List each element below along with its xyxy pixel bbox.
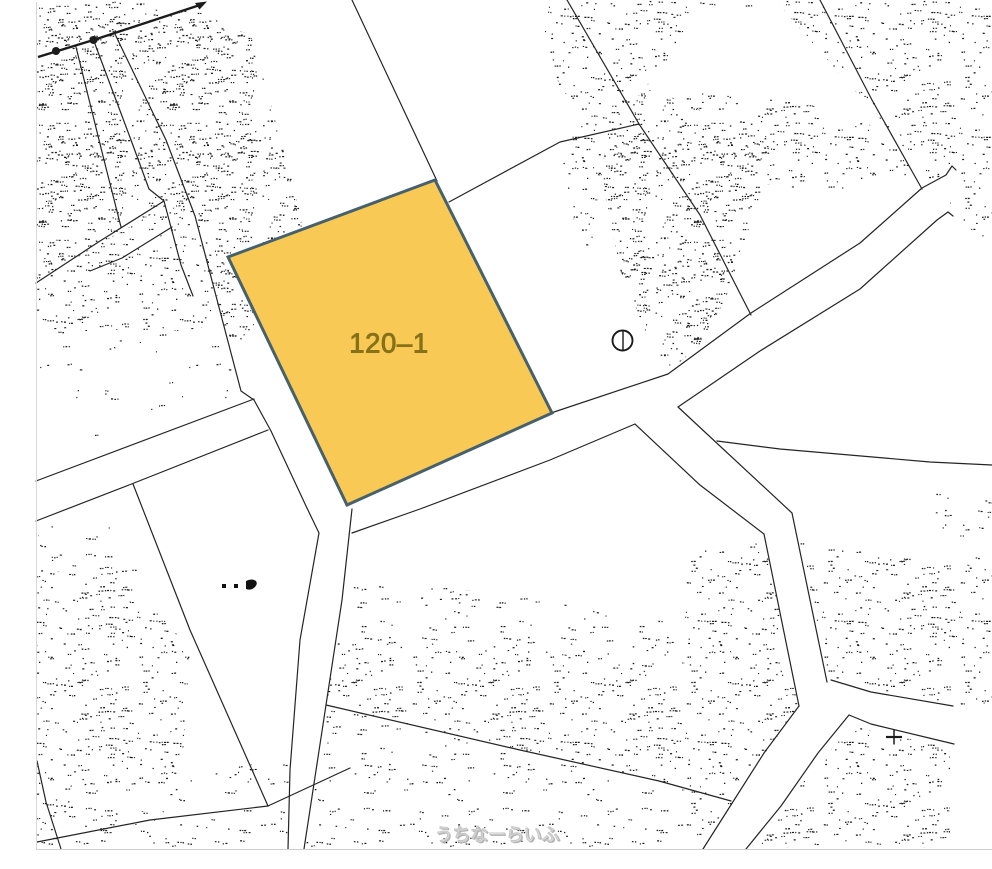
svg-text:120–1: 120–1 — [349, 328, 428, 359]
svg-text:うちなーらいふ: うちなーらいふ — [435, 825, 560, 845]
